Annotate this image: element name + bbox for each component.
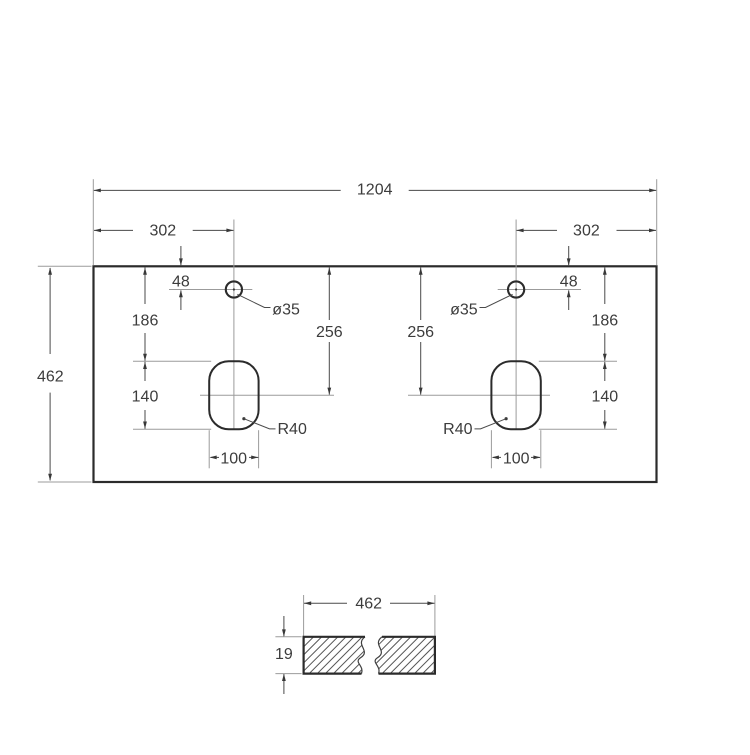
svg-text:256: 256 — [316, 324, 343, 341]
svg-text:ø35: ø35 — [450, 302, 478, 319]
svg-text:R40: R40 — [278, 421, 307, 438]
svg-text:1204: 1204 — [357, 181, 393, 198]
svg-text:140: 140 — [591, 389, 618, 406]
svg-text:256: 256 — [407, 324, 434, 341]
svg-text:R40: R40 — [443, 421, 472, 438]
svg-text:48: 48 — [172, 274, 190, 291]
svg-text:19: 19 — [275, 646, 293, 663]
svg-text:462: 462 — [37, 369, 64, 386]
svg-text:302: 302 — [573, 222, 600, 239]
svg-text:186: 186 — [132, 313, 159, 330]
svg-text:186: 186 — [591, 313, 618, 330]
svg-text:100: 100 — [503, 450, 530, 467]
svg-text:302: 302 — [149, 222, 176, 239]
svg-text:140: 140 — [132, 389, 159, 406]
svg-text:462: 462 — [355, 596, 382, 613]
svg-text:48: 48 — [560, 274, 578, 291]
svg-text:ø35: ø35 — [272, 302, 300, 319]
svg-text:100: 100 — [220, 450, 247, 467]
